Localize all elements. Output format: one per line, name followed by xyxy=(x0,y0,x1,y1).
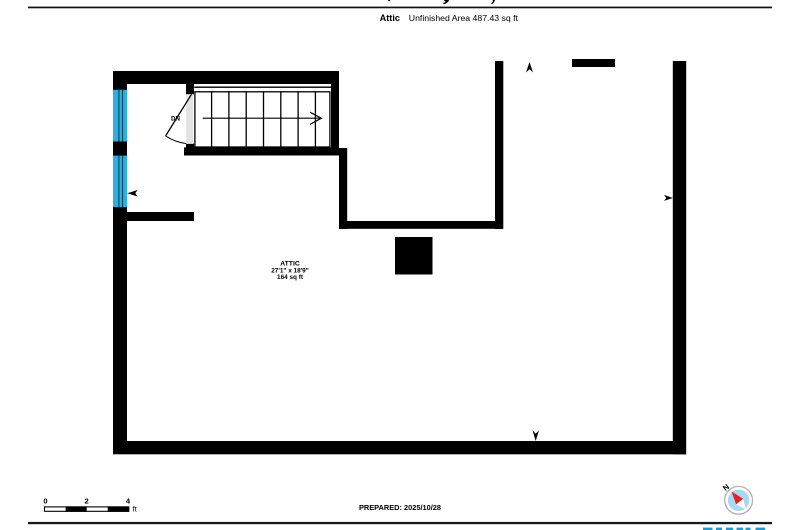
svg-text:Attic: Attic xyxy=(380,13,400,23)
svg-text:DN: DN xyxy=(171,115,180,122)
svg-text:164 sq ft: 164 sq ft xyxy=(277,274,304,281)
svg-text:PREPARED: 2025/10/28: PREPARED: 2025/10/28 xyxy=(359,503,441,512)
svg-text:2: 2 xyxy=(84,497,88,506)
svg-text:0: 0 xyxy=(43,497,47,506)
svg-text:Unfinished Area 487.43 sq ft: Unfinished Area 487.43 sq ft xyxy=(409,13,519,23)
